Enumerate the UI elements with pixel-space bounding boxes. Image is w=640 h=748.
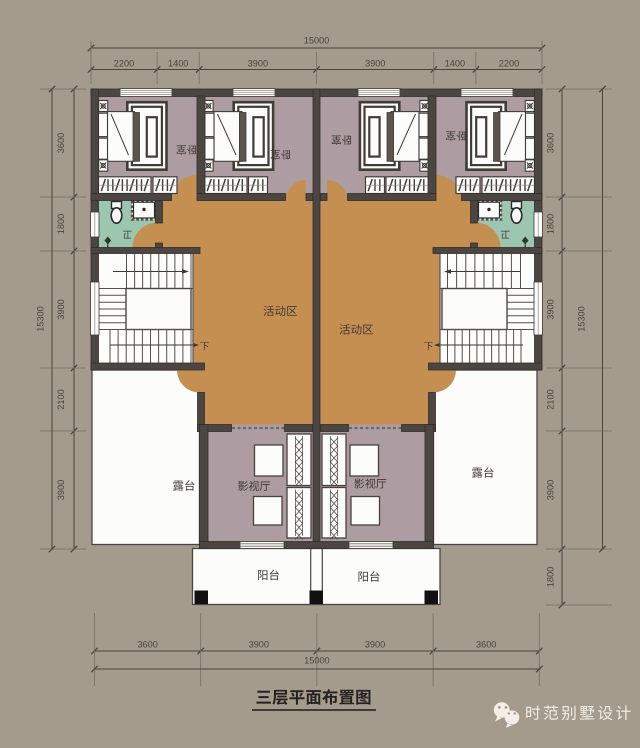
svg-text:15000: 15000 <box>304 36 330 46</box>
svg-text:2100: 2100 <box>546 389 556 409</box>
svg-text:3900: 3900 <box>546 480 556 500</box>
svg-text:3900: 3900 <box>365 59 385 69</box>
svg-text:2100: 2100 <box>56 389 66 409</box>
svg-text:3900: 3900 <box>365 640 385 650</box>
svg-text:2200: 2200 <box>499 59 519 69</box>
svg-text:3900: 3900 <box>56 480 66 500</box>
svg-text:3900: 3900 <box>56 299 66 319</box>
svg-text:1800: 1800 <box>546 567 556 587</box>
svg-text:3900: 3900 <box>546 299 556 319</box>
svg-text:3900: 3900 <box>248 59 268 69</box>
svg-text:15000: 15000 <box>304 656 330 666</box>
svg-text:15300: 15300 <box>36 306 46 332</box>
svg-text:3600: 3600 <box>476 640 496 650</box>
svg-text:3600: 3600 <box>137 640 157 650</box>
svg-text:1400: 1400 <box>445 59 465 69</box>
svg-text:1400: 1400 <box>168 59 188 69</box>
svg-text:15300: 15300 <box>577 306 587 332</box>
svg-text:3900: 3900 <box>249 640 269 650</box>
svg-text:3600: 3600 <box>56 133 66 153</box>
svg-text:2200: 2200 <box>114 59 134 69</box>
svg-text:1800: 1800 <box>56 214 66 234</box>
svg-text:3600: 3600 <box>546 133 556 153</box>
svg-text:1800: 1800 <box>546 214 556 234</box>
